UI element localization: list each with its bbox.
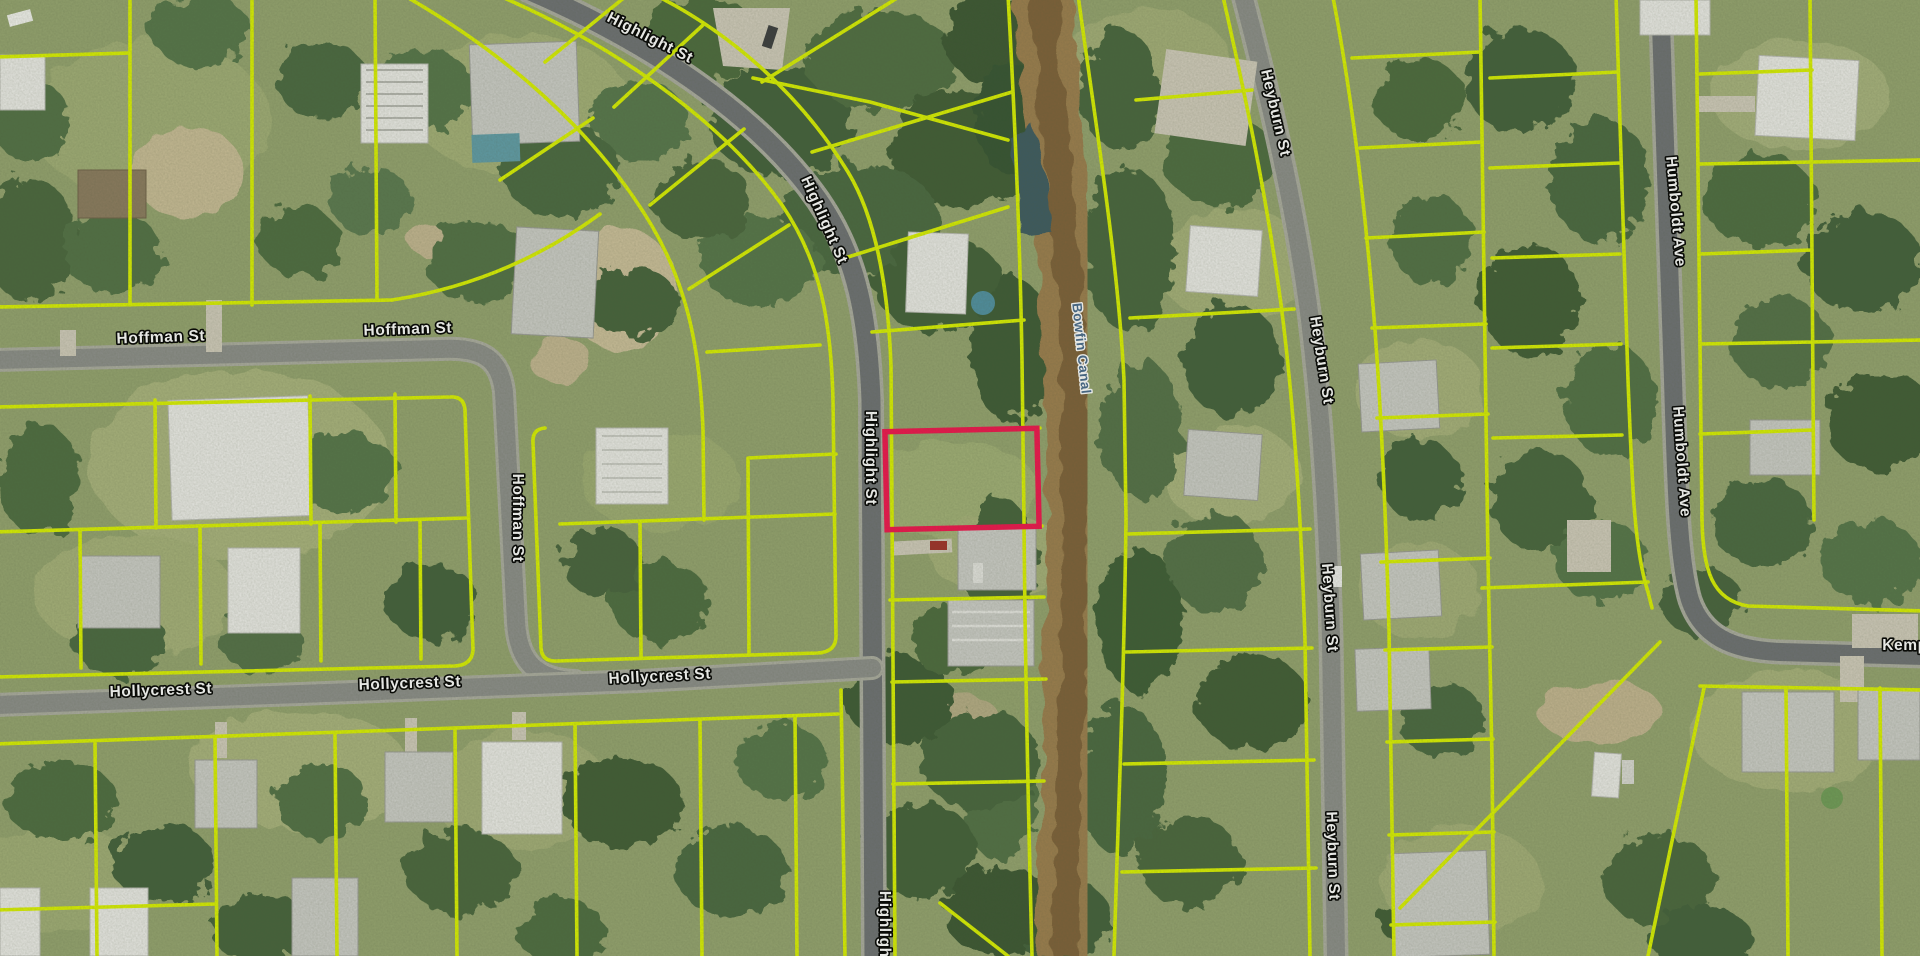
imagery-texture-overlay (0, 0, 1920, 956)
aerial-parcel-map[interactable]: Highlight StHighlight StHighlight StHigh… (0, 0, 1920, 956)
